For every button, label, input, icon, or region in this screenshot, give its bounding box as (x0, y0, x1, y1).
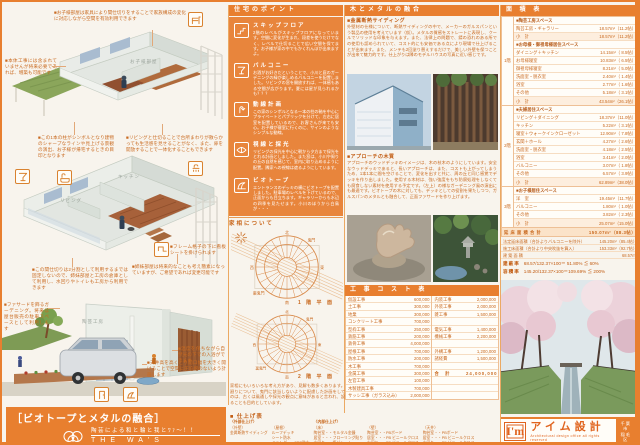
area-row: キッチン5.22m²（ 3.1帖） (514, 122, 638, 130)
cost-row: コンクリート工事700,000 (346, 318, 431, 325)
cost-item-value: 700,000 (399, 385, 429, 391)
cost-row: 木工事700,000 (346, 363, 431, 370)
leader-line (48, 308, 60, 309)
cost-item-value: 2,000,000 (399, 392, 429, 399)
finish-group: （屋根）ルーフデッキシート防水ベランダ・・FRP防水 (272, 420, 310, 445)
point-section: バルコニーお酒がお好きだということで、小川と庭のガーデニングの緑が楽しめるバルコ… (233, 61, 339, 97)
title-banner: ［ビオトープとメタルの融合］ 陶芸による和と輪と我とﾜｧ～！！ THE WA'S… (6, 407, 226, 443)
area-room-label: 小 計 (516, 33, 599, 40)
cost-row (432, 377, 498, 384)
door-icon (96, 389, 108, 401)
chart-label-2f: 2 階 平 面 (298, 373, 334, 380)
siding-section-body: 外壁材の仕様について、断熱サイディングの中で、メーカーのガルスパンという製品の使… (347, 24, 497, 58)
cost-row: 鉄筋工事200,000 (346, 333, 431, 340)
cost-item-value: 2,000,000 (466, 303, 496, 309)
cost-item-value: 4,000,000 (399, 340, 429, 346)
cost-item-label (434, 392, 466, 399)
cost-row (432, 363, 498, 370)
area-value: 8.21m²（ 5.0帖） (603, 65, 636, 72)
cost-item-value: 1,500,000 (466, 355, 496, 361)
area-room-label: 小 計 (516, 98, 599, 105)
cost-row: 電気工事1,400,000 (432, 326, 498, 333)
bath-icon (59, 172, 71, 184)
board-title: ［ビオトープとメタルの融合］ (12, 410, 220, 425)
direction-label: 南 (285, 374, 289, 379)
area-value: 2.77m²（ 1.6帖） (603, 81, 636, 88)
annotation: ■本体工事には含まれていませんが将来必要であれば、増築も可能です (5, 58, 57, 76)
point-section: ビオトープエントランスのデッキの横にビオトープを配置しました。駐車場のレベルを下… (233, 176, 339, 212)
area-value: 18.57m²（11.2帖） (599, 25, 636, 32)
area-row: 浴室3.41m²（ 2.0帖） (514, 154, 638, 162)
cost-item-value: 700,000 (399, 363, 429, 369)
cost-row (432, 392, 498, 399)
cost-item-value (466, 340, 496, 346)
area-row: 洗面室・脱衣室4.18m²（ 2.5帖） (514, 146, 638, 154)
cost-item-label: 機械工事 (434, 333, 466, 339)
floor-rows: ■お子様居住スペース洋 室19.45m²（11.7帖）バルコニー1.80m²（ … (514, 187, 638, 227)
points-panel: スキップフロア2階のレベルがスキップフロアになっています。空間に変化が生まれ、段… (229, 17, 343, 216)
room-label: お子様部屋 (130, 59, 158, 65)
finish-item: ベランダ・・FRP防水 (272, 441, 310, 445)
area-row: リビング＋ダイニング18.37m²（11.0帖） (514, 114, 638, 122)
cost-item-label: 型枠工事 (348, 326, 399, 332)
location-city: 千葉市 (619, 421, 633, 431)
area-row: ■お母様・御祖母様居住スペース (514, 41, 638, 49)
direction-label: 西 (253, 342, 257, 347)
cost-row: 仮設工事600,000 (346, 296, 431, 303)
leader-line (172, 350, 178, 351)
cost-table-left: 仮設工事600,000土工事300,000地業300,000コンクリート工事70… (346, 296, 431, 399)
summary-value: 68.57m² (622, 252, 637, 258)
cost-item-label (434, 385, 466, 391)
area-row: 小 計18.57m²（11.2帖） (514, 33, 638, 41)
location-badge: 千葉市 稲毛区 (616, 419, 636, 443)
cost-item-value: 1,500,000 (466, 311, 496, 317)
finish-group: 〈内部仕上げ〉（床）陶芸室・・モルタル金鏝居室・・・フローリング貼り水回り・・塩… (314, 420, 363, 445)
cost-item-label: 防水工事 (348, 355, 399, 361)
area-room-label: その他 (516, 211, 603, 218)
cost-table-header: 工 事 コ ス ト 表 (345, 285, 499, 296)
finish-group: 〈外部仕上げ〉（外壁）金属断熱サイディング (230, 420, 268, 445)
cost-item-label: 雑工事 (434, 311, 466, 317)
cost-row: 金属工事300,000 (346, 370, 431, 377)
ratio-value: 68.57/132.37×100＝ 51.80% ≦ 60% (524, 260, 599, 268)
direction-label: 北 (285, 230, 289, 235)
cost-item-label: 左官工事 (348, 377, 399, 383)
cost-item-label: 木工事 (348, 363, 399, 369)
kasou-chart-1f: 北東南西鬼門裏鬼門 (231, 226, 343, 308)
area-room-label: ■陶芸工房スペース (516, 17, 636, 24)
point-title: バルコニー (253, 61, 339, 69)
area-row: 玄関＋ホール4.27m²（ 2.6帖） (514, 138, 638, 146)
cost-item-label: 木製建具工事 (348, 385, 399, 391)
cost-row: 防水工事200,000 (346, 355, 431, 362)
ratio-label: 建蔽率 (503, 260, 520, 268)
point-title: スキップフロア (253, 21, 339, 29)
floor-label: 1階 (502, 17, 514, 105)
direction-label: 北 (285, 309, 289, 314)
firm-logo-block: I'm アイム設計 Architectural design office al… (501, 417, 639, 444)
cost-item-label: 鉄筋工事 (348, 333, 399, 339)
cost-item-label (434, 377, 466, 383)
point-section: スキップフロア2階のレベルがスキップフロアになっています。空間に変化が生まれ、段… (233, 21, 339, 57)
cost-item-value: 300,000 (399, 370, 429, 376)
cost-row: 土工事300,000 (346, 303, 431, 310)
floor-label: 3階 (502, 187, 514, 227)
ratio-row: 容積率145.20/132.37×100＝109.69% ≦ 200% (501, 268, 639, 276)
area-table-header: 面 積 表 (501, 5, 639, 16)
summary-value: 153.33m²（92.7帖） (599, 245, 637, 251)
ratio-value: 145.20/132.37×100＝109.69% ≦ 200% (524, 268, 605, 276)
cost-item-value: 300,000 (399, 303, 429, 309)
biotope-icon (234, 178, 249, 193)
area-room-label: 小 計 (516, 179, 599, 186)
cost-item-label: 合 計 (434, 370, 466, 376)
daylight-icon (234, 142, 249, 157)
room-label: リビング (60, 198, 82, 204)
area-value: 6.57m²（ 3.9帖） (603, 170, 636, 177)
area-room-label: 陶芸工房・ギャラリー (516, 25, 599, 32)
presentation-board: ［ビオトープとメタルの融合］ 陶芸による和と輪と我とﾜｧ～！！ THE WA'S… (0, 0, 640, 445)
cost-row: サッシ工事（ガラス込み）2,000,000 (346, 392, 431, 399)
area-room-label: 小 計 (516, 220, 599, 227)
direction-label: 裏鬼門 (255, 365, 266, 370)
direction-label: 鬼門 (308, 238, 316, 243)
firm-name: アイム設計 (530, 422, 611, 433)
floor-rows: ■陶芸工房スペース陶芸工房・ギャラリー18.57m²（11.2帖）小 計18.5… (514, 17, 638, 105)
area-room-label: 洗面室・脱衣室 (516, 73, 603, 80)
cost-row (432, 318, 498, 325)
annotation: ■お子様部屋は家具により間仕切りをすることで家族構成の変化に対応しながら空間を有… (54, 10, 186, 22)
cost-item-label: 外装工事 (434, 303, 466, 309)
direction-label: 東 (318, 342, 322, 347)
point-body: リビングの採光を中心に朝から夕方まで採光をとれる計画としました。また窓は、小川や… (253, 149, 339, 170)
point-title: ビオトープ (253, 176, 339, 184)
cost-item-value (466, 318, 496, 324)
area-row: ■夫婦居住スペース (514, 106, 638, 114)
siding-section-title: ■金属断熱サイディング (347, 17, 405, 24)
leader-line (52, 66, 66, 67)
point-title: 動線計画 (253, 100, 339, 108)
cocktail-icon (234, 63, 249, 78)
daylight-icon (236, 144, 247, 155)
area-row: 洗面室・脱衣室2.40m²（ 1.4帖） (514, 73, 638, 81)
cost-item-value: 700,000 (399, 318, 429, 324)
cost-item-label: 土工事 (348, 303, 399, 309)
location-ward: 稲毛区 (619, 432, 633, 442)
cost-item-label (434, 363, 466, 369)
shower-icon (188, 161, 203, 176)
cost-item-label: 諸経費 (434, 355, 466, 361)
area-row: 浴室2.77m²（ 1.6帖） (514, 81, 638, 89)
firm-tagline: Architectural design office all rights r… (530, 434, 611, 442)
area-value: 1.80m²（ 1.0帖） (603, 203, 636, 210)
area-room-label: その他 (516, 89, 603, 96)
area-value: 2.40m²（ 1.4帖） (603, 73, 636, 80)
area-value: 4.18m²（ 2.5帖） (603, 146, 636, 153)
finish-item: 水回り・・PB ビニールクロス (367, 441, 419, 445)
point-section: 視線と採光リビングの採光を中心に朝から夕方まで採光をとれる計画としました。また窓… (233, 140, 339, 172)
points-header: 住宅のポイント (229, 5, 343, 16)
summary-row: 施工床面積（合計より中央吹抜を算入）153.33m²（92.7帖） (501, 245, 639, 252)
area-row: その他3.82m²（ 2.3帖） (514, 211, 638, 219)
tagline: 陶芸による和と輪と我とﾜｧ～！！ (91, 426, 220, 436)
biotope-icon (236, 180, 247, 191)
annotation: ■この間仕切りは2分割として利用するまでは固定しないので、姉妹部屋と工房の倉庫と… (32, 267, 128, 291)
area-room-label: キッチン (516, 122, 603, 129)
bath-icon (57, 170, 72, 185)
area-value: 3.82m²（ 2.3帖） (603, 211, 636, 218)
area-room-label: ■お母様・御祖母様居住スペース (516, 41, 636, 48)
area-value: 10.83m²（ 6.5帖） (600, 57, 636, 64)
finish-item: 水回り・・塩ビシート (314, 441, 363, 445)
summary-label: 建 築 面 積 (503, 252, 622, 258)
area-value: 18.57m²（11.2帖） (599, 33, 636, 40)
area-value: 62.89m²（38.0帖） (599, 179, 636, 186)
swan-icon (123, 387, 138, 402)
chart-label-1f: 1 階 平 面 (298, 299, 334, 306)
cost-item-value: 200,000 (399, 355, 429, 361)
cost-row: 型枠工事250,000 (346, 326, 431, 333)
leader-line (177, 254, 178, 264)
cost-row: 諸経費1,500,000 (432, 355, 498, 362)
area-room-label: 寝室＋ウォークインクローゼット (516, 130, 600, 137)
area-room-label: ダイニング＋キッチン (516, 49, 600, 56)
point-body: 2階のレベルがスキップフロアになっています。空間に変化が生まれ、段差を使うだけで… (253, 30, 339, 57)
area-row: 小 計25.07m²（15.0帖） (514, 219, 638, 227)
point-body: この家のシンボルとなる一本の柱の軸を中心にプライベートとパブリックを分けて、左右… (253, 109, 339, 136)
kasou-chart-2f: 北東南西鬼門裏鬼門 (231, 306, 343, 382)
cost-item-value: 2,000,000 (466, 296, 496, 302)
finish-item: 水回り・・PB ビニールクロス (423, 441, 475, 445)
area-value: 5.22m²（ 3.1帖） (603, 122, 636, 129)
door-icon (94, 387, 109, 402)
three-rings-logo-icon (60, 430, 86, 445)
cherry-blossom-canal-photo (501, 280, 639, 414)
cost-table-right: 内装工事2,000,000外装工事2,000,000雑工事1,500,000電気… (431, 296, 498, 399)
area-value: 18.37m²（11.0帖） (599, 114, 636, 121)
sign-icon (154, 242, 169, 257)
area-value: 19.45m²（11.7帖） (599, 195, 636, 202)
cost-item-label: 地業 (348, 311, 399, 317)
area-room-label: お母様寝室 (516, 57, 600, 64)
area-room-label: 玄関＋ホール (516, 138, 603, 145)
direction-label: 鬼門 (306, 316, 314, 321)
cost-item-value: 700,000 (399, 348, 429, 354)
cost-table: 仮設工事600,000土工事300,000地業300,000コンクリート工事70… (345, 296, 499, 400)
area-value: 3.07m²（ 1.8帖） (603, 162, 636, 169)
area-room-label: リビング＋ダイニング (516, 114, 599, 121)
cost-item-value: 300,000 (399, 311, 429, 317)
cost-row: 外構工事1,200,000 (432, 348, 498, 355)
cost-item-value: 2,200,000 (466, 333, 496, 339)
area-room-label: 洋 室 (516, 195, 599, 202)
cost-item-value (466, 363, 496, 369)
cost-row (432, 340, 498, 347)
area-room-label: 浴室 (516, 81, 603, 88)
approach-section-body: アプローチのウッドデッキのイメージは、木の枝木のようにしています。安全なウッドデ… (347, 160, 497, 200)
area-row: バルコニー3.07m²（ 1.8帖） (514, 162, 638, 170)
area-row: 洋 室19.45m²（11.7帖） (514, 195, 638, 203)
area-value: 14.15m²（ 8.5帖） (600, 49, 636, 56)
desk-icon (190, 14, 202, 26)
cost-item-value: 1,200,000 (466, 348, 496, 354)
pottery-hands-photo (347, 215, 431, 282)
area-row: 寝室＋ウォークインクローゼット12.90m²（ 7.8帖） (514, 130, 638, 138)
wood-gate-photo (433, 74, 498, 150)
annotation: ■フレーム格子の下に看板シートを掛けられます (170, 244, 226, 256)
area-room-label: 浴室 (516, 154, 603, 161)
im-logo: I'm (504, 422, 526, 441)
cost-item-label: 外構工事 (434, 348, 466, 354)
cost-item-value (466, 392, 496, 399)
area-value: 12.90m²（ 7.8帖） (600, 130, 636, 137)
cost-item-value: 100,000 (399, 377, 429, 383)
area-room-label: バルコニー (516, 162, 603, 169)
area-total-row: 延 床 面 積 合 計150.07m²（88.3帖） (502, 228, 638, 236)
finish-item: 金属断熱サイディング (230, 431, 268, 436)
area-row: その他5.18m²（ 3.1帖） (514, 89, 638, 97)
cost-item-value: 24,000,000 (466, 370, 496, 376)
floor-block: 3階■お子様居住スペース洋 室19.45m²（11.7帖）バルコニー1.80m²… (502, 187, 638, 228)
cost-item-label (434, 340, 466, 346)
point-body: お酒がお好きだということで、小川と庭のガーデニングの緑が楽しめるバルコニーを配置… (253, 70, 339, 97)
area-row: ■陶芸工房スペース (514, 17, 638, 25)
cocktail-icon (15, 169, 30, 184)
annotation: ■姉妹部屋は将来的なことも考え簡素になっていますが、ご希望であれば変更可能です (132, 264, 225, 276)
area-room-label: その他 (516, 170, 603, 177)
area-value: 43.54m²（26.1帖） (599, 98, 636, 105)
area-row: 御祖母様寝室8.21m²（ 5.0帖） (514, 65, 638, 73)
house-name: THE WA'S HOUSE (91, 437, 220, 445)
floor-block: 2階■夫婦居住スペースリビング＋ダイニング18.37m²（11.0帖）キッチン5… (502, 106, 638, 187)
cost-row: 合 計24,000,000 (432, 370, 498, 377)
summary-label: 法定延床面積（合計よりバルコニーを除外） (503, 238, 599, 244)
skip-floor-icon (234, 23, 249, 38)
summary-label: 施工床面積（合計より中央吹抜を算入） (503, 245, 599, 251)
point-title: 視線と採光 (253, 140, 339, 148)
cost-row: 外装工事2,000,000 (432, 303, 498, 310)
point-body: エントランスのデッキの横にビオトープを配置しました。駐車場のレベルを下げているの… (253, 185, 339, 212)
cocktail-icon (17, 171, 29, 183)
finish-group: （壁）陶芸室・・PBボード居室・・・PB ビニールクロス水回り・・PB ビニール… (367, 420, 419, 445)
cost-row: 地業300,000 (346, 311, 431, 318)
area-room-label: ■お子様居住スペース (516, 187, 636, 194)
sign-icon (156, 244, 168, 256)
annotation: ■ファサードを飾るガーデニング。将来は屋台販売の駐車スペースとして利用します (4, 302, 49, 332)
direction-label: 東 (320, 265, 324, 270)
skip-floor-icon (236, 25, 247, 36)
metal-header: 木とメタルの融合 (345, 5, 499, 16)
area-room-label: 御祖母様寝室 (516, 65, 603, 72)
flow-line-icon (236, 104, 247, 115)
cost-row: 雑工事1,500,000 (432, 311, 498, 318)
leader-line (152, 30, 153, 46)
leader-line (74, 122, 75, 135)
summary-row: 法定延床面積（合計よりバルコニーを除外）145.20m²（85.4帖） (501, 238, 639, 245)
area-table: 1階■陶芸工房スペース陶芸工房・ギャラリー18.57m²（11.2帖）小 計18… (501, 16, 639, 237)
annotation: ■この1本の柱がシンボルとなり建物のシャープなラインや見上げる景観の演出、お子様… (38, 135, 114, 159)
cost-item-label: 電気工事 (434, 326, 466, 332)
area-total-label: 延 床 面 積 合 計 (504, 229, 589, 236)
cost-item-label: 屋根工事 (348, 348, 399, 354)
area-row: バルコニー1.80m²（ 1.0帖） (514, 203, 638, 211)
desk-icon (188, 12, 203, 27)
cost-item-value: 250,000 (399, 326, 429, 332)
swan-icon (125, 389, 137, 401)
area-total-value: 150.07m²（88.3帖） (589, 229, 636, 236)
cocktail-icon (236, 65, 247, 76)
cost-item-label: 金属工事 (348, 370, 399, 376)
finish-schedule: 〈外部仕上げ〉（外壁）金属断熱サイディング（屋根）ルーフデッキシート防水ベランダ… (230, 420, 498, 445)
cost-item-label: コンクリート工事 (348, 318, 399, 324)
summary-row: 建 築 面 積68.57m² (501, 252, 639, 259)
floor-rows: ■夫婦居住スペースリビング＋ダイニング18.37m²（11.0帖）キッチン5.2… (514, 106, 638, 186)
direction-label: 裏鬼門 (253, 290, 265, 295)
cost-row: 鉄骨工事4,000,000 (346, 340, 431, 347)
garden-pond-photo (433, 215, 498, 282)
point-section: 動線計画この家のシンボルとなる一本の柱の軸を中心にプライベートとパブリックを分け… (233, 100, 339, 136)
shower-icon (190, 163, 202, 175)
room-label: 陶芸工房 (82, 319, 104, 325)
cost-item-label: 仮設工事 (348, 296, 399, 302)
area-row: ■お子様居住スペース (514, 187, 638, 195)
annotation: ■天井高を高くとり開口幅を大きく開けることで空間に圧迫感のないよう計画します (147, 360, 226, 378)
room-label: キッチン (118, 174, 140, 180)
cost-item-label: サッシ工事（ガラス込み） (348, 392, 399, 399)
finish-schedule-title: ■ 仕上げ表 (230, 412, 263, 420)
cost-row: 屋根工事700,000 (346, 348, 431, 355)
area-row: その他6.57m²（ 3.9帖） (514, 170, 638, 178)
cost-item-value (466, 385, 496, 391)
annotation: ■リビングと仕切ることで台所まわりが散らかっても生活感を見せることがなく、また、… (126, 135, 223, 153)
cost-row: 機械工事2,200,000 (432, 333, 498, 340)
leader-line (72, 258, 73, 267)
cost-row (432, 385, 498, 392)
cost-item-label: 鉄骨工事 (348, 340, 399, 346)
summary-value: 145.20m²（85.4帖） (599, 238, 637, 244)
cost-row: 木製建具工事700,000 (346, 385, 431, 392)
area-row: 小 計62.89m²（38.0帖） (514, 178, 638, 186)
approach-section-title: ■アプローチの木質 (347, 153, 395, 160)
area-row: ダイニング＋キッチン14.15m²（ 8.5帖） (514, 49, 638, 57)
area-value: 4.27m²（ 2.6帖） (603, 138, 636, 145)
metal-siding-building-photo (347, 74, 431, 150)
cost-row: 内装工事2,000,000 (432, 296, 498, 303)
cost-item-value: 600,000 (399, 296, 429, 302)
area-value: 25.07m²（15.0帖） (599, 220, 636, 227)
area-room-label: バルコニー (516, 203, 603, 210)
area-room-label: 洗面室・脱衣室 (516, 146, 603, 153)
area-value: 5.18m²（ 3.1帖） (603, 89, 636, 96)
cost-item-label: 内装工事 (434, 296, 466, 302)
ratio-row: 建蔽率68.57/132.37×100＝ 51.80% ≦ 60% (501, 260, 639, 268)
leader-line (142, 364, 147, 365)
cost-item-value: 1,400,000 (466, 326, 496, 332)
floor-label: 2階 (502, 106, 514, 186)
leader-line (162, 124, 163, 135)
floor-block: 1階■陶芸工房スペース陶芸工房・ギャラリー18.57m²（11.2帖）小 計18… (502, 17, 638, 106)
coverage-ratios: 建蔽率68.57/132.37×100＝ 51.80% ≦ 60%容積率145.… (501, 260, 639, 276)
area-row: 小 計43.54m²（26.1帖） (514, 97, 638, 105)
area-room-label: ■夫婦居住スペース (516, 106, 636, 113)
area-row: 陶芸工房・ギャラリー18.57m²（11.2帖） (514, 25, 638, 33)
cost-item-label (434, 318, 466, 324)
cost-item-value (466, 377, 496, 383)
area-row: お母様寝室10.83m²（ 6.5帖） (514, 57, 638, 65)
direction-label: 西 (250, 265, 254, 270)
area-summary: 法定延床面積（合計よりバルコニーを除外）145.20m²（85.4帖）施工床面積… (501, 238, 639, 259)
